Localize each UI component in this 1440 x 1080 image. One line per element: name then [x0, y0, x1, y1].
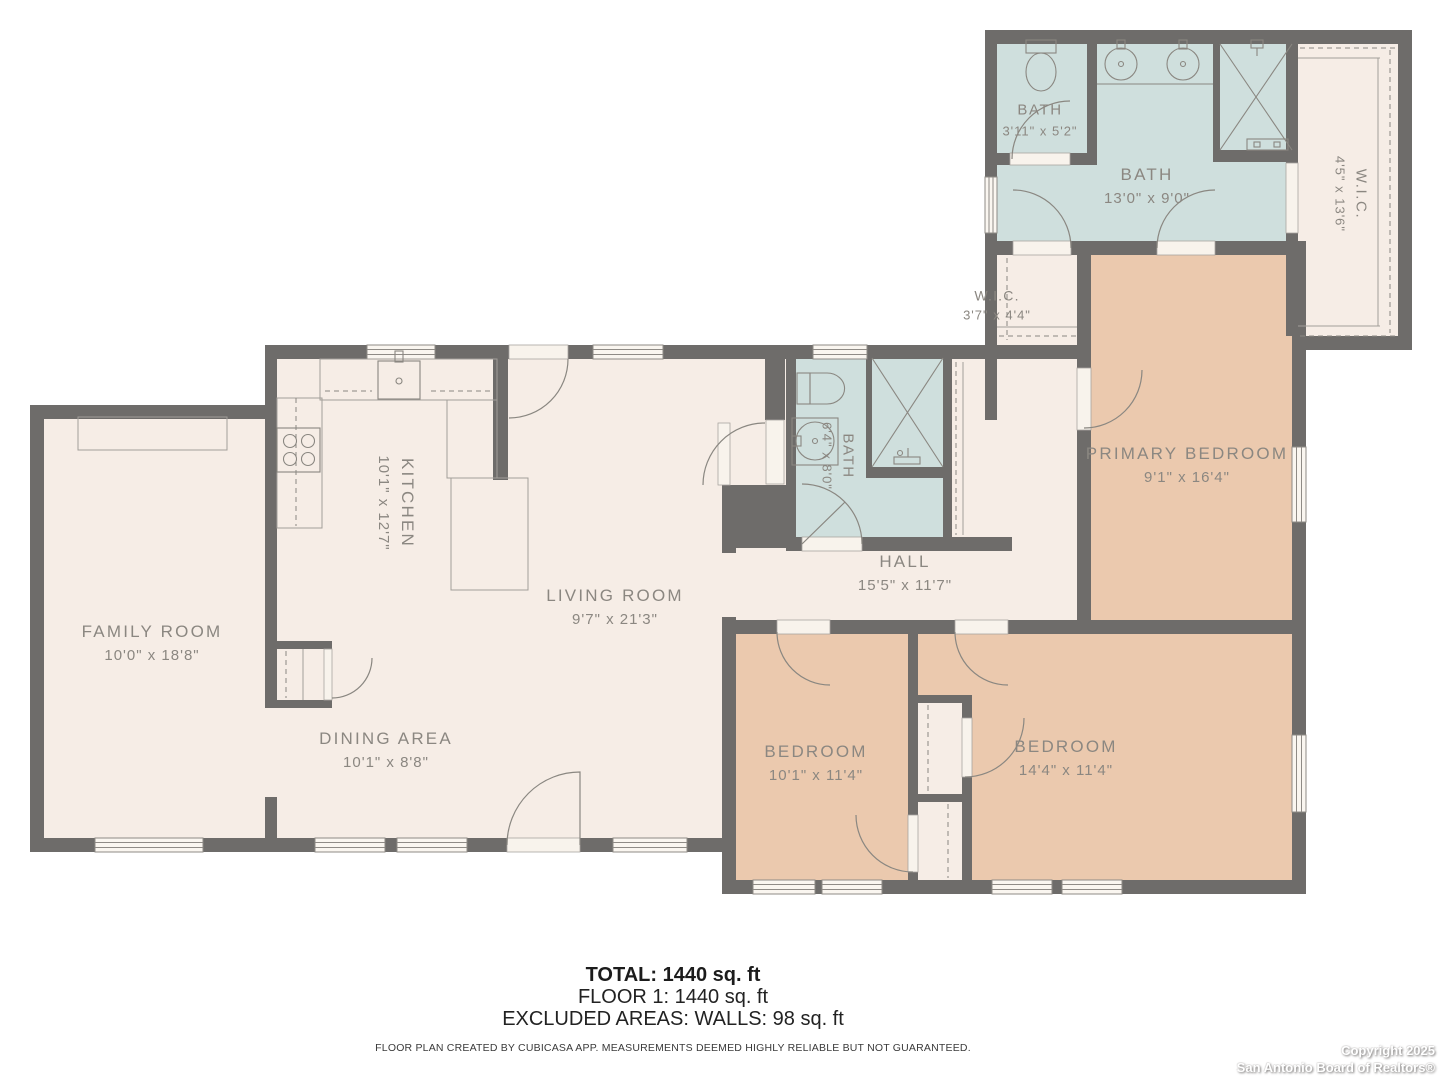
area-summary: TOTAL: 1440 sq. ft FLOOR 1: 1440 sq. ft …: [273, 964, 1073, 1054]
copyright-line1: Copyright 2025: [1237, 1042, 1435, 1060]
room-name: BEDROOM: [1014, 738, 1117, 755]
room-dims: 10'1" x 8'8": [319, 755, 453, 770]
room-dims: 6'4" x 8'0": [821, 422, 834, 490]
room-label-family-room: FAMILY ROOM 10'0" x 18'8": [82, 623, 223, 663]
excluded-areas-text: EXCLUDED AREAS: WALLS: 98 sq. ft: [273, 1008, 1073, 1030]
room-dims: 13'0" x 9'0": [1104, 191, 1190, 206]
room-dims: 3'11" x 5'2": [1002, 125, 1077, 138]
room-name: BATH: [1002, 103, 1077, 118]
window: [1292, 735, 1306, 812]
room-name: LIVING ROOM: [546, 587, 684, 604]
window: [593, 345, 663, 359]
window: [813, 345, 867, 359]
floor1-area-text: FLOOR 1: 1440 sq. ft: [273, 986, 1073, 1008]
window: [315, 838, 385, 852]
room-label-hall: HALL 15'5" x 11'7": [858, 553, 952, 593]
window: [613, 838, 687, 852]
copyright-line2: San Antonio Board of Realtors®: [1237, 1059, 1435, 1077]
window: [1062, 880, 1122, 894]
room-name: BATH: [1104, 166, 1190, 183]
room-name: KITCHEN: [399, 455, 416, 550]
room-name: BEDROOM: [764, 743, 867, 760]
room-label-kitchen: KITCHEN 10'1" x 12'7": [376, 455, 416, 550]
window: [367, 345, 435, 359]
floor-plan-page: FAMILY ROOM 10'0" x 18'8" KITCHEN 10'1" …: [0, 0, 1440, 1080]
room-name: W.I.C.: [963, 289, 1031, 303]
room-dims: 10'1" x 11'4": [764, 768, 867, 783]
room-label-primary-bedroom: PRIMARY BEDROOM 9'1" x 16'4": [1086, 445, 1288, 485]
window: [753, 880, 815, 894]
room-name: DINING AREA: [319, 730, 453, 747]
room-name: PRIMARY BEDROOM: [1086, 445, 1288, 462]
copyright-notice: Copyright 2025 San Antonio Board of Real…: [1237, 1042, 1435, 1077]
window: [397, 838, 467, 852]
room-label-bath-small: BATH 3'11" x 5'2": [1002, 103, 1077, 138]
disclaimer-text: FLOOR PLAN CREATED BY CUBICASA APP. MEAS…: [273, 1042, 1073, 1054]
room-label-wic-small: W.I.C. 3'7" x 4'4": [963, 289, 1031, 322]
room-name: HALL: [858, 553, 952, 570]
window: [95, 838, 203, 852]
window: [1292, 447, 1306, 522]
room-name: W.I.C.: [1354, 156, 1369, 232]
room-dims: 15'5" x 11'7": [858, 578, 952, 593]
room-dims: 10'0" x 18'8": [82, 648, 223, 663]
room-dims: 14'4" x 11'4": [1014, 763, 1117, 778]
room-label-bedroom-right: BEDROOM 14'4" x 11'4": [1014, 738, 1117, 778]
room-label-dining-area: DINING AREA 10'1" x 8'8": [319, 730, 453, 770]
room-dims: 9'1" x 16'4": [1086, 470, 1288, 485]
room-name: FAMILY ROOM: [82, 623, 223, 640]
floor-plan-drawing: [0, 0, 1440, 1080]
room-label-living-room: LIVING ROOM 9'7" x 21'3": [546, 587, 684, 627]
room-dims: 9'7" x 21'3": [546, 612, 684, 627]
total-area-text: TOTAL: 1440 sq. ft: [273, 964, 1073, 986]
room-dims: 4'5" x 13'6": [1334, 156, 1347, 232]
window: [992, 880, 1052, 894]
room-label-bath-primary: BATH 13'0" x 9'0": [1104, 166, 1190, 206]
room-dims: 10'1" x 12'7": [376, 455, 391, 550]
room-label-bedroom-left: BEDROOM 10'1" x 11'4": [764, 743, 867, 783]
room-dims: 3'7" x 4'4": [963, 309, 1031, 322]
window: [822, 880, 882, 894]
room-label-wic-large: W.I.C. 4'5" x 13'6": [1334, 156, 1369, 232]
room-label-hall-bath: BATH 6'4" x 8'0": [821, 422, 856, 490]
room-name: BATH: [841, 422, 856, 490]
window: [985, 177, 997, 233]
